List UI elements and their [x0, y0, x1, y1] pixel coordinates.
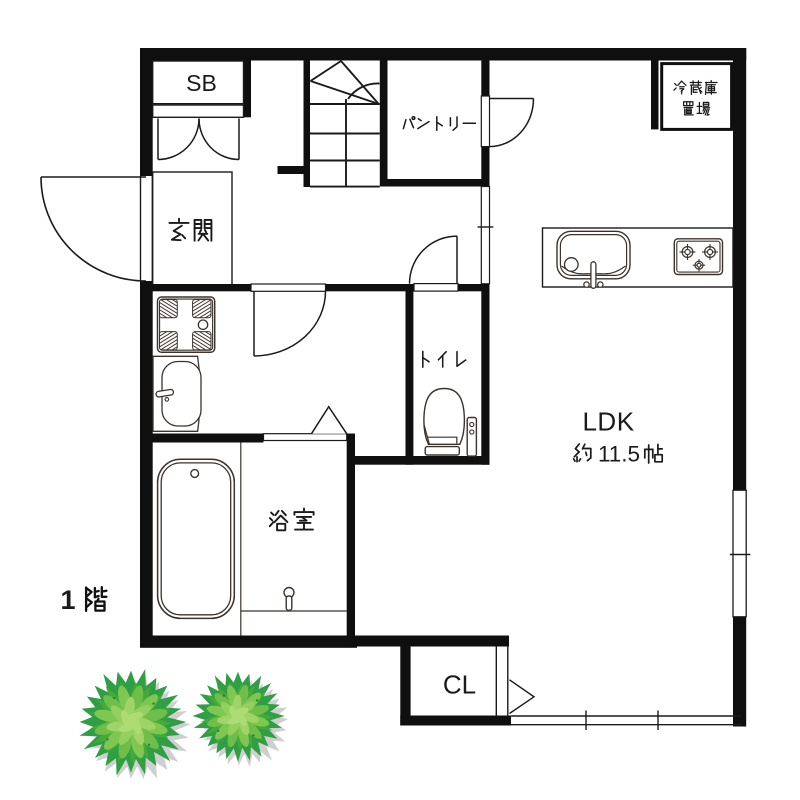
svg-text:11.5: 11.5	[598, 442, 640, 467]
svg-text:SB: SB	[186, 70, 217, 96]
svg-text:1: 1	[60, 585, 75, 615]
svg-text:LDK: LDK	[582, 407, 634, 437]
svg-text:CL: CL	[443, 670, 476, 700]
